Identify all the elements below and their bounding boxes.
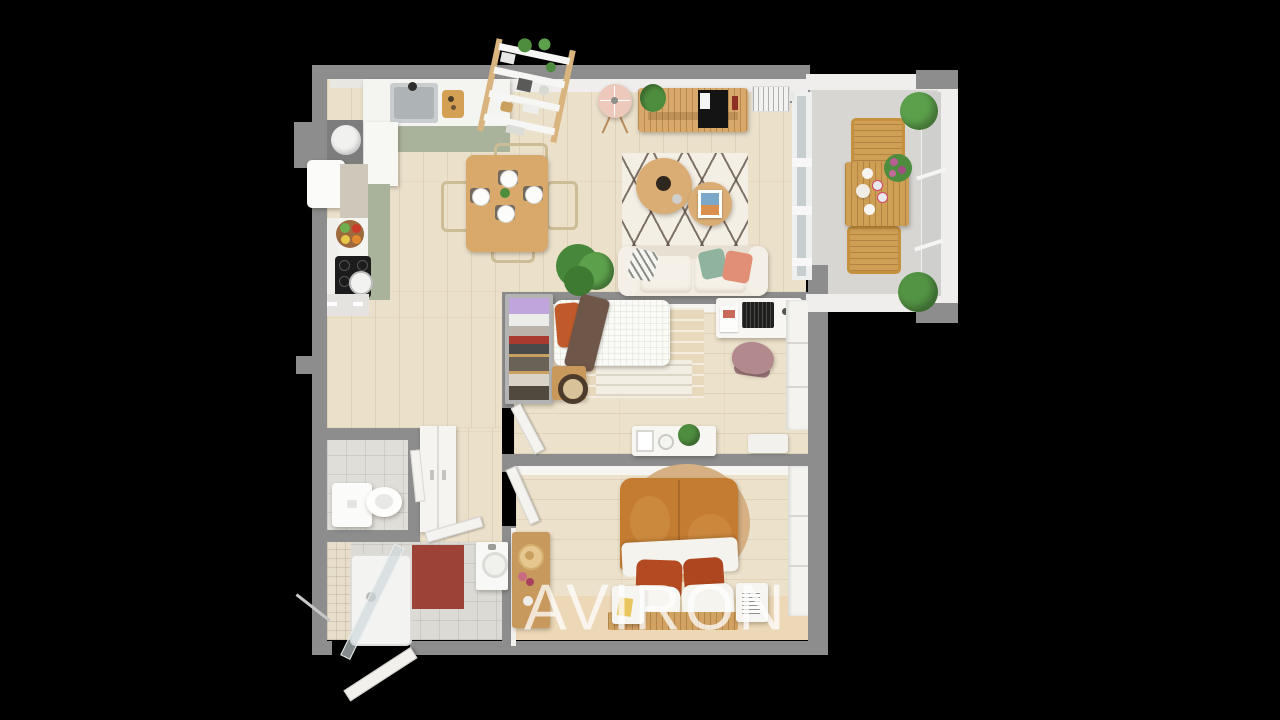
kitchen-tall-cabinet [363, 122, 398, 186]
wardrobe-shoes [509, 386, 549, 400]
wall-wc-bottom [312, 530, 420, 542]
teacup [872, 180, 883, 191]
kitchen-faucet [408, 82, 417, 91]
shelf-plant [545, 61, 557, 73]
shelf-books [500, 52, 516, 65]
flower-pink [890, 158, 898, 166]
wardrobe-shoes [509, 357, 549, 371]
flower-pink [889, 170, 896, 177]
balcony-plant [900, 92, 938, 130]
notebook-art [723, 310, 735, 318]
fruit-yellow [341, 235, 350, 244]
sideboard-frame [636, 430, 654, 452]
shelf-plant [537, 37, 551, 51]
lamp-bulb [611, 97, 618, 104]
flower-pink [898, 166, 906, 174]
laptop [742, 302, 774, 328]
teapot [856, 184, 870, 198]
wardrobe-boxes [509, 374, 549, 386]
hall-closet-seam [437, 426, 439, 532]
cooking-pot [349, 271, 373, 295]
shelf-jar [538, 84, 550, 96]
balcony-door-glass [797, 96, 806, 276]
wall-left-stub [296, 356, 314, 374]
dining-chair [546, 181, 578, 230]
table-centerpiece-plant [500, 188, 510, 198]
fruit-red [352, 224, 361, 233]
art-picture-town [701, 205, 719, 215]
balcony-plate [862, 168, 873, 179]
sofa-side-plant-leaves [564, 266, 594, 296]
balcony-wall-right [938, 74, 958, 322]
plate [497, 205, 515, 223]
fruit-green [340, 223, 350, 233]
closet-handle [430, 470, 434, 480]
watermark: AVIRON [524, 569, 789, 644]
rattan-tray [558, 374, 588, 404]
sink-faucet [488, 544, 496, 550]
tv-paper [700, 93, 710, 109]
cutting-board [442, 90, 464, 118]
coffee-table-vase [656, 176, 671, 191]
washing-machine-top [331, 125, 361, 155]
teacup [877, 192, 888, 203]
shelf-basket [500, 101, 514, 113]
balcony-door-crossbar [792, 206, 812, 215]
closet-handle [442, 470, 446, 480]
floor-box-white [748, 434, 788, 453]
console-plant [640, 84, 666, 112]
radiator [752, 86, 790, 112]
fruit-orange [352, 235, 361, 244]
bedroom1-closet [786, 300, 808, 430]
wardrobe-clothes-mixed [509, 326, 549, 336]
sink-basin [482, 552, 508, 578]
shower-tiled-wall [327, 542, 351, 640]
shelf-box [516, 78, 532, 93]
closet-seam [788, 565, 808, 567]
stove-burner [357, 260, 368, 271]
toilet-bowl-inner [375, 494, 393, 509]
sideboard-plant [678, 424, 700, 446]
art-picture-sky [701, 193, 719, 205]
drawer-handle [353, 302, 363, 306]
closet-seam [788, 515, 808, 517]
closet-seam [786, 342, 808, 344]
sofa-armrest [748, 246, 768, 296]
entry-mat-red [412, 545, 464, 609]
balcony-plant [898, 272, 938, 312]
balcony-corner-cap-top [916, 70, 958, 89]
floor-plan-render: AVIRON [0, 0, 1280, 720]
balcony-chair [847, 226, 901, 274]
cutting-board-item [451, 105, 456, 110]
plate [500, 170, 518, 188]
duvet-leaf-print [630, 496, 670, 546]
toilet-flush-button [347, 500, 357, 508]
balcony-door-crossbar [792, 158, 812, 167]
balcony-plate [864, 204, 875, 215]
wardrobe-clothes-dark [509, 344, 549, 354]
pillow-coral [722, 250, 754, 284]
closet-seam [786, 386, 808, 388]
wall-wc-top [312, 428, 420, 440]
wardrobe-clothes-white [509, 314, 549, 326]
kitchen-counter-taupe [340, 164, 368, 220]
bedroom2-closet [788, 466, 808, 616]
coffee-table-dish [672, 194, 682, 204]
balcony-door-crossbar [792, 258, 812, 266]
sideboard-plate [658, 434, 674, 450]
drawer-handle [327, 302, 337, 306]
wardrobe-clothes-red [509, 336, 549, 344]
radiator-knob [789, 92, 795, 101]
kitchen-sink-basin [394, 87, 434, 119]
wall-bottom-left [312, 641, 332, 655]
wardrobe-blanket-lavender [509, 298, 549, 314]
plate [525, 186, 543, 204]
entry-door-leaf [343, 647, 417, 701]
stove-burner [339, 260, 350, 271]
console-candle [732, 96, 738, 110]
cutting-board-item [448, 96, 454, 102]
plate [472, 188, 490, 206]
straw-hat-crown [525, 551, 534, 560]
